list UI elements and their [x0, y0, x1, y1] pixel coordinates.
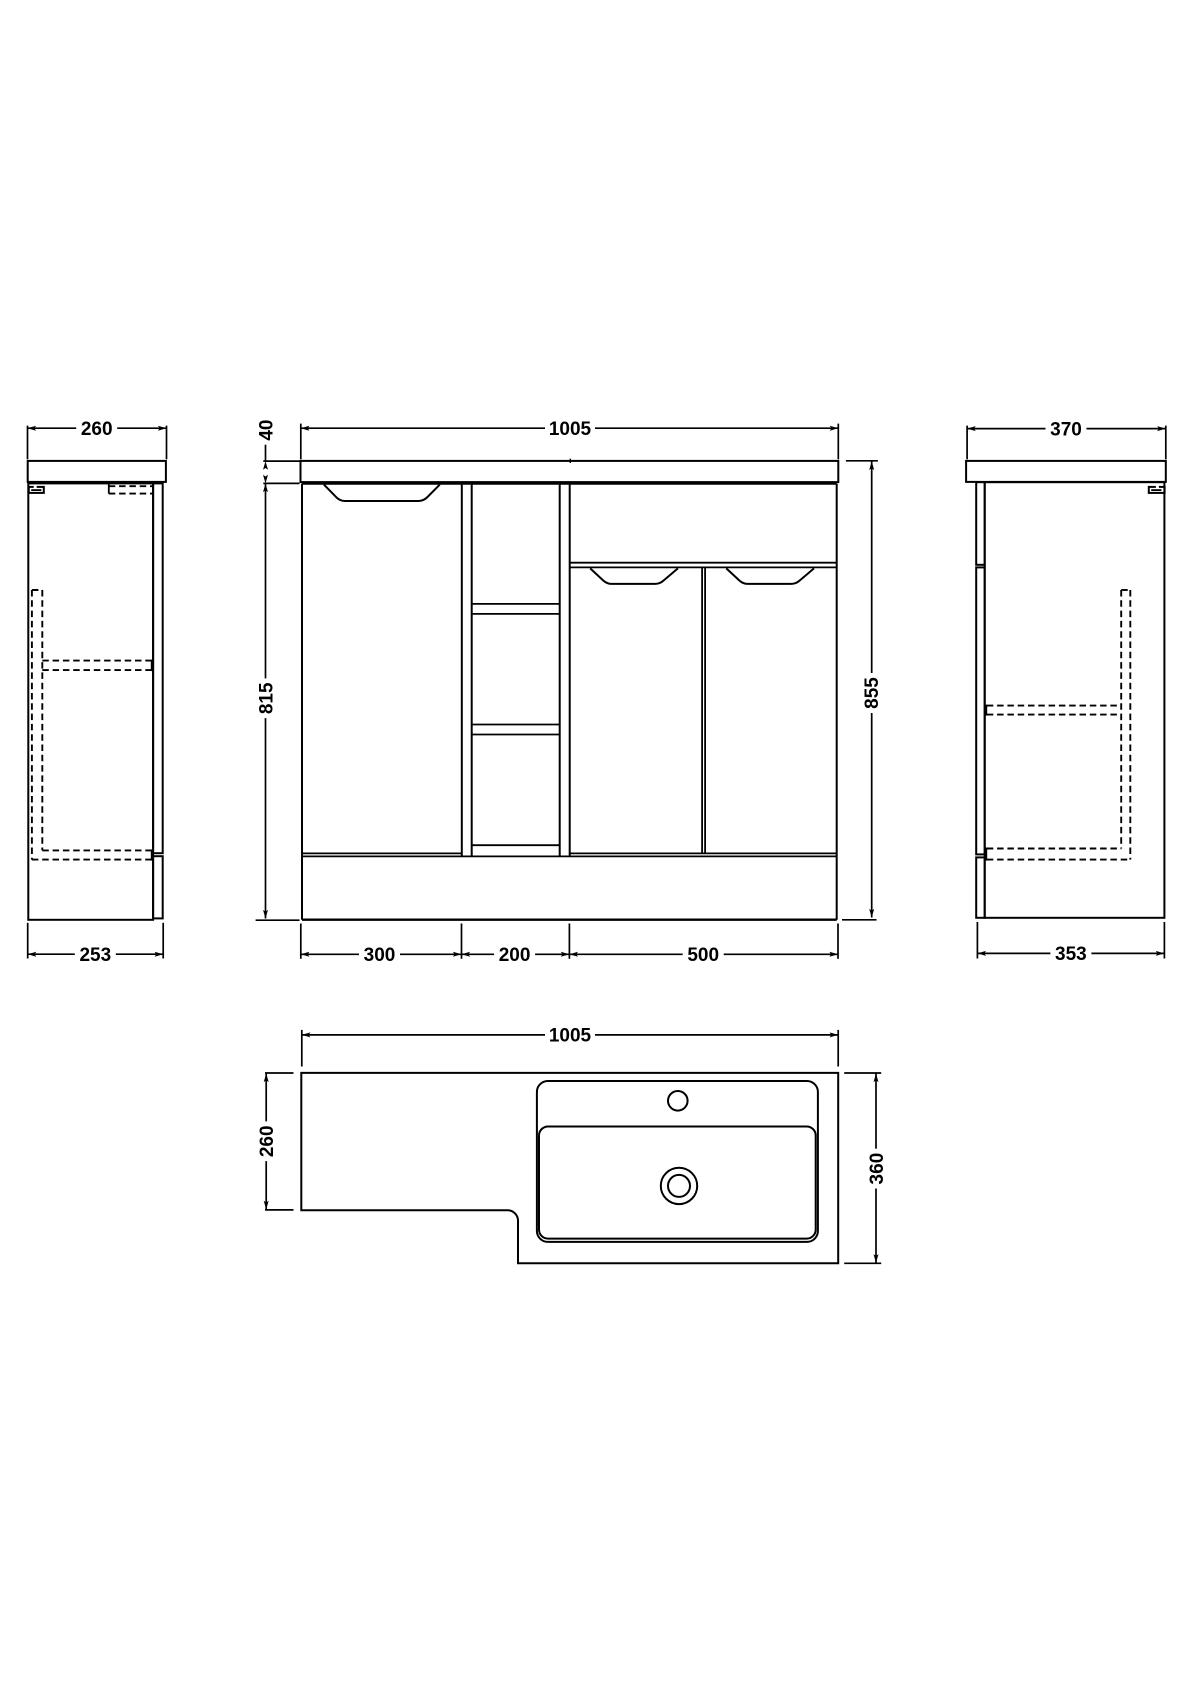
svg-text:370: 370 — [1050, 419, 1082, 440]
svg-text:855: 855 — [862, 677, 883, 709]
svg-text:360: 360 — [867, 1153, 888, 1185]
svg-text:260: 260 — [81, 419, 113, 440]
svg-text:353: 353 — [1055, 944, 1087, 965]
svg-text:1005: 1005 — [549, 1026, 592, 1047]
svg-text:500: 500 — [687, 945, 719, 966]
svg-text:40: 40 — [257, 420, 278, 441]
svg-text:1005: 1005 — [549, 419, 592, 440]
svg-text:300: 300 — [364, 945, 396, 966]
svg-text:815: 815 — [257, 682, 278, 714]
svg-text:200: 200 — [499, 945, 531, 966]
svg-text:260: 260 — [257, 1125, 278, 1157]
svg-text:253: 253 — [79, 945, 111, 966]
